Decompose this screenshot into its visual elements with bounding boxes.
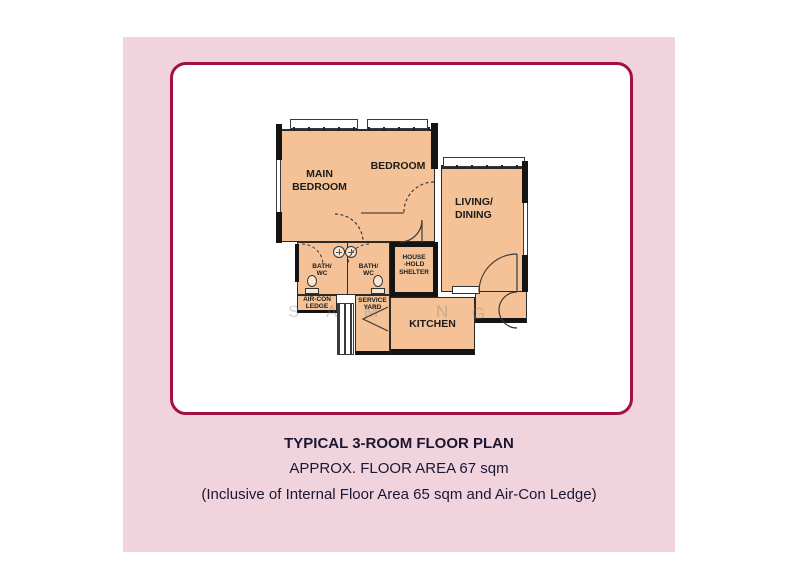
screenshot-root: S A M N G MA <box>0 0 800 566</box>
room-label-bedroom: BEDROOM <box>361 160 435 173</box>
room-label-service-yard: SERVICE YARD <box>355 297 390 312</box>
room-label-line: MAIN <box>278 168 361 181</box>
room-label-bath1: BATH/ WC <box>297 263 347 278</box>
bath2-door-arc <box>348 244 369 265</box>
caption-note: (Inclusive of Internal Floor Area 65 sqm… <box>123 486 675 503</box>
room-label-line: -HOLD <box>392 261 436 268</box>
room-label-aircon-ledge: AIR-CON LEDGE <box>297 296 337 311</box>
bath1-door-arc <box>302 244 323 265</box>
pink-panel: S A M N G MA <box>123 37 675 552</box>
room-label-line: LEDGE <box>297 303 337 310</box>
room-label-line: WC <box>297 270 347 277</box>
room-label-line: BATH/ <box>297 263 347 270</box>
room-label-bath2: BATH/ WC <box>347 263 390 278</box>
floor-plan: S A M N G MA <box>276 96 564 401</box>
room-label-main-bedroom: MAIN BEDROOM <box>278 168 361 194</box>
caption-title: TYPICAL 3-ROOM FLOOR PLAN <box>123 435 675 452</box>
room-label-line: SHELTER <box>392 269 436 276</box>
shelter-door-arc <box>400 220 422 242</box>
floorplan-card: S A M N G MA <box>170 62 633 415</box>
room-label-line: LIVING/ <box>455 196 527 209</box>
room-label-line: YARD <box>355 304 390 311</box>
entrance-door-arc <box>479 254 517 292</box>
room-label-line: BATH/ <box>347 263 390 270</box>
room-label-line: BEDROOM <box>278 181 361 194</box>
room-label-household-shelter: HOUSE -HOLD SHELTER <box>392 254 436 276</box>
main-bedroom-door-arc <box>335 214 363 242</box>
room-label-living-dining: LIVING/ DINING <box>441 196 527 222</box>
bedroom-door-arc <box>404 182 434 212</box>
room-label-line: WC <box>347 270 390 277</box>
room-label-line: HOUSE <box>392 254 436 261</box>
room-label-line: DINING <box>455 209 527 222</box>
entrance-gate-arc <box>499 292 517 328</box>
room-label-line: SERVICE <box>355 297 390 304</box>
room-label-kitchen: KITCHEN <box>390 318 475 331</box>
room-label-line: AIR-CON <box>297 296 337 303</box>
caption-floor-area: APPROX. FLOOR AREA 67 sqm <box>123 460 675 477</box>
door-arcs-overlay <box>276 96 564 401</box>
